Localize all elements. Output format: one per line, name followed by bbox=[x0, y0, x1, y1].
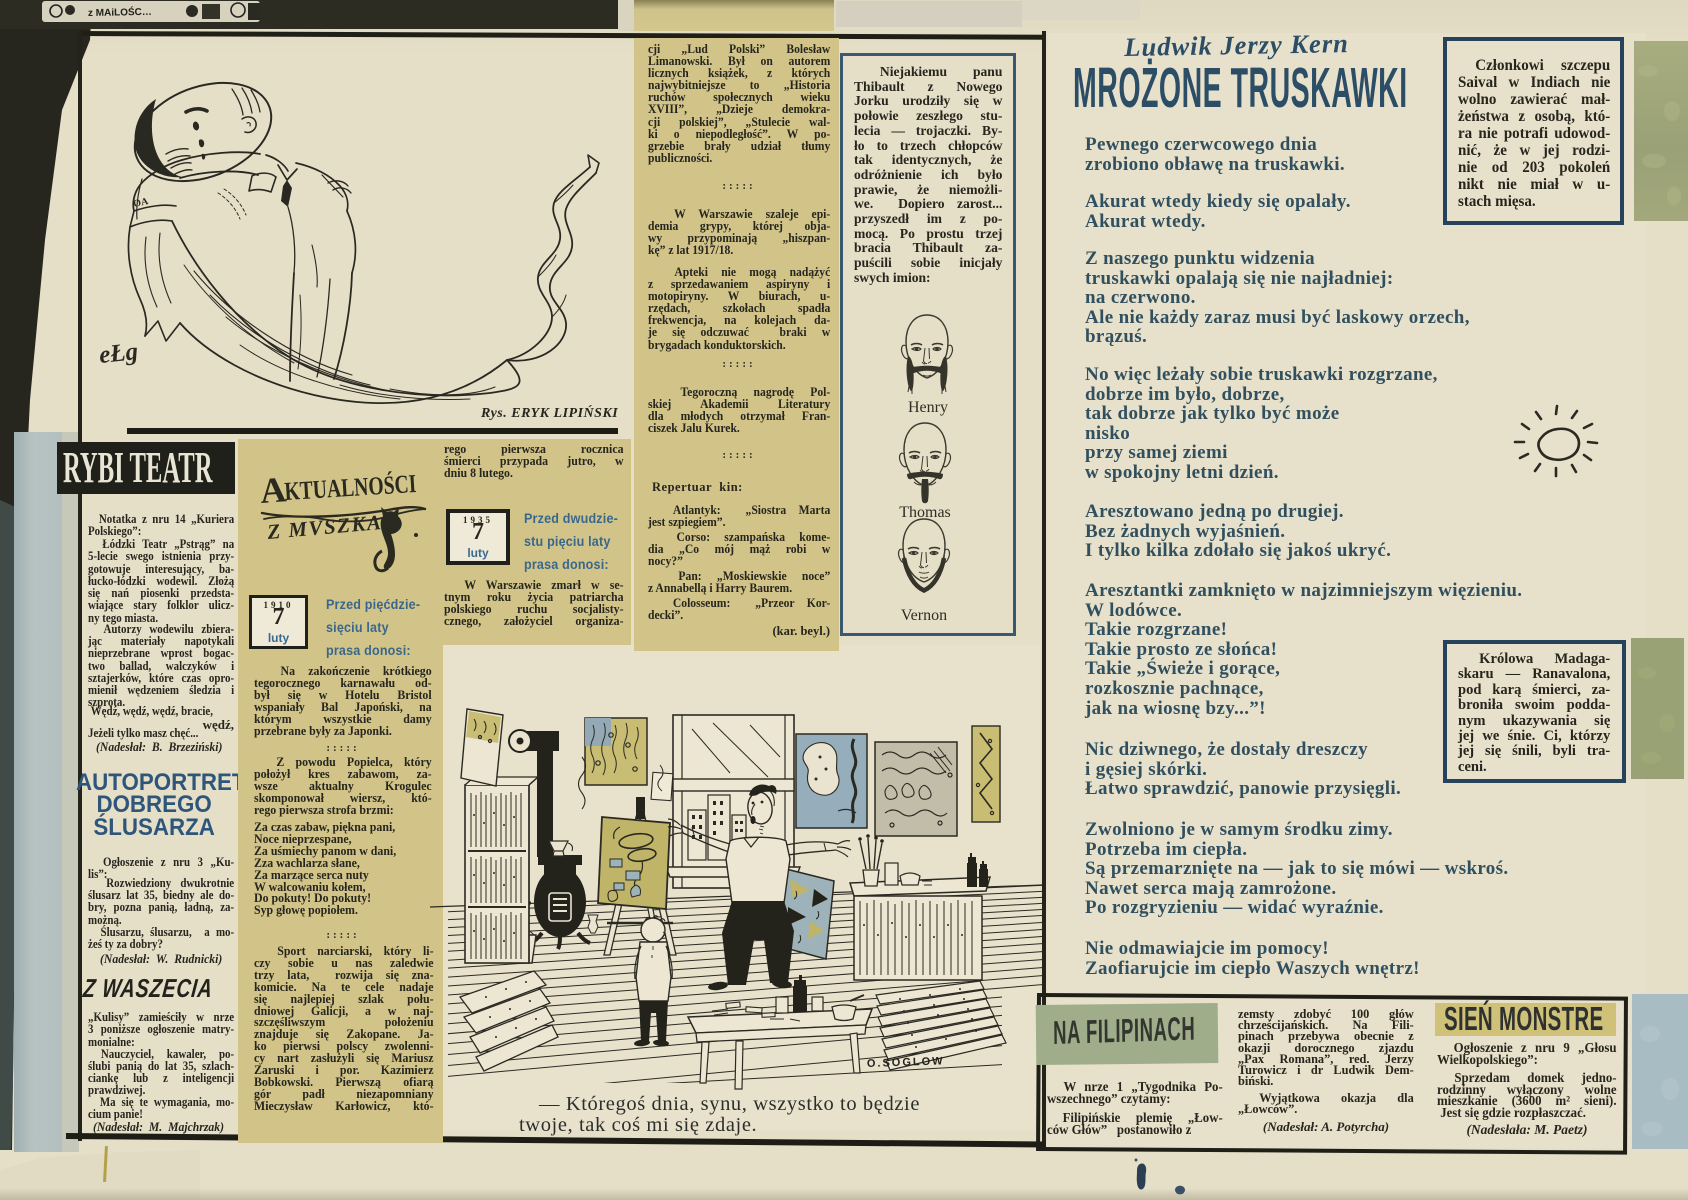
svg-text:A: A bbox=[259, 469, 288, 511]
svg-text:z MAiLOŚC…: z MAiLOŚC… bbox=[88, 5, 152, 19]
svg-text:O.SOGLOW: O.SOGLOW bbox=[867, 1055, 945, 1070]
svg-text:Z MVSZKA,: Z MVSZKA, bbox=[265, 509, 390, 544]
svg-text:eŁg: eŁg bbox=[98, 338, 139, 369]
svg-text:KTUALNOŚCI: KTUALNOŚCI bbox=[284, 469, 418, 506]
